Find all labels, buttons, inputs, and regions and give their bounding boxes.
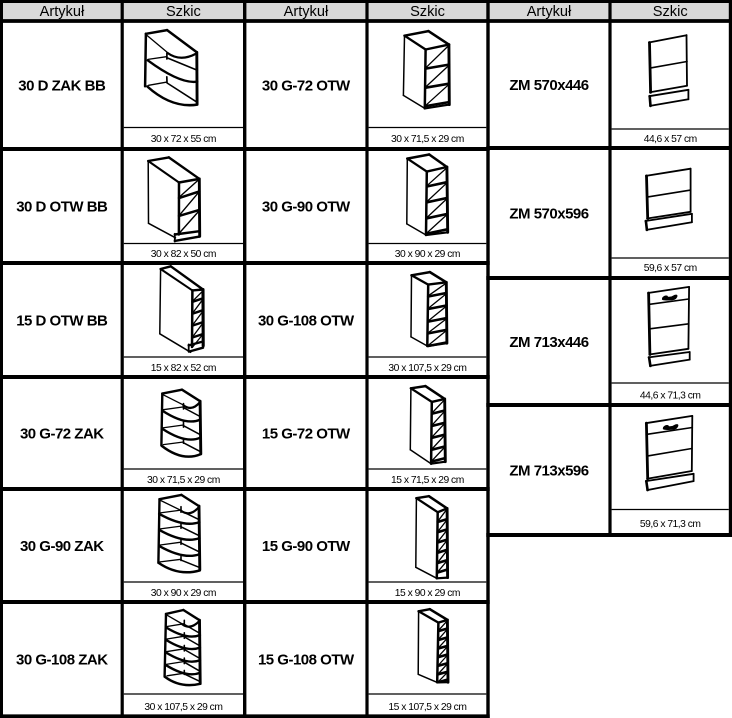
svg-text:Artykuł: Artykuł xyxy=(40,4,85,20)
svg-text:15 x 82 x 52 cm: 15 x 82 x 52 cm xyxy=(151,363,216,374)
svg-text:30 x 90 x 29 cm: 30 x 90 x 29 cm xyxy=(151,588,216,599)
svg-text:44,6 x 71,3 cm: 44,6 x 71,3 cm xyxy=(640,390,701,401)
svg-text:30 x 71,5 x 29 cm: 30 x 71,5 x 29 cm xyxy=(147,475,220,486)
svg-text:30 G-108 ZAK: 30 G-108 ZAK xyxy=(16,652,108,669)
svg-text:15 G-90 OTW: 15 G-90 OTW xyxy=(262,538,351,555)
svg-text:59,6 x 57 cm: 59,6 x 57 cm xyxy=(644,263,697,274)
svg-text:Artykuł: Artykuł xyxy=(284,4,329,20)
svg-text:Szkic: Szkic xyxy=(410,4,445,20)
svg-text:Artykuł: Artykuł xyxy=(527,4,572,20)
svg-text:30 G-72 ZAK: 30 G-72 ZAK xyxy=(20,425,104,442)
svg-text:ZM 570x596: ZM 570x596 xyxy=(509,205,588,222)
svg-text:30 G-72 OTW: 30 G-72 OTW xyxy=(262,77,351,94)
svg-text:30 G-90 OTW: 30 G-90 OTW xyxy=(262,198,351,215)
svg-text:ZM 713x596: ZM 713x596 xyxy=(509,462,588,479)
svg-text:30 D ZAK BB: 30 D ZAK BB xyxy=(18,77,106,94)
svg-text:30 x 82 x 50 cm: 30 x 82 x 50 cm xyxy=(151,249,216,260)
svg-text:30 G-108 OTW: 30 G-108 OTW xyxy=(258,312,355,329)
svg-text:Szkic: Szkic xyxy=(653,4,688,20)
svg-text:15 G-72 OTW: 15 G-72 OTW xyxy=(262,425,351,442)
svg-text:44,6 x 57 cm: 44,6 x 57 cm xyxy=(644,134,697,145)
svg-text:30 x 90 x 29 cm: 30 x 90 x 29 cm xyxy=(395,249,460,260)
svg-text:59,6 x 71,3 cm: 59,6 x 71,3 cm xyxy=(640,519,701,530)
svg-text:15 x 90 x 29 cm: 15 x 90 x 29 cm xyxy=(395,588,460,599)
svg-text:30 x 72 x 55 cm: 30 x 72 x 55 cm xyxy=(151,134,216,145)
svg-text:15 D OTW BB: 15 D OTW BB xyxy=(16,312,108,329)
svg-text:15 x 71,5 x 29 cm: 15 x 71,5 x 29 cm xyxy=(391,475,464,486)
svg-text:ZM 570x446: ZM 570x446 xyxy=(509,77,588,94)
svg-text:15 G-108 OTW: 15 G-108 OTW xyxy=(258,652,355,669)
svg-text:30 x 107,5 x 29 cm: 30 x 107,5 x 29 cm xyxy=(388,363,466,374)
svg-text:30 x 71,5 x 29 cm: 30 x 71,5 x 29 cm xyxy=(391,134,464,145)
svg-text:30 D OTW BB: 30 D OTW BB xyxy=(16,198,108,215)
svg-text:30 G-90 ZAK: 30 G-90 ZAK xyxy=(20,538,104,555)
svg-text:30 x 107,5 x 29 cm: 30 x 107,5 x 29 cm xyxy=(144,702,222,713)
svg-text:Szkic: Szkic xyxy=(166,4,201,20)
svg-text:ZM 713x446: ZM 713x446 xyxy=(509,334,588,351)
svg-text:15 x 107,5 x 29 cm: 15 x 107,5 x 29 cm xyxy=(388,702,466,713)
